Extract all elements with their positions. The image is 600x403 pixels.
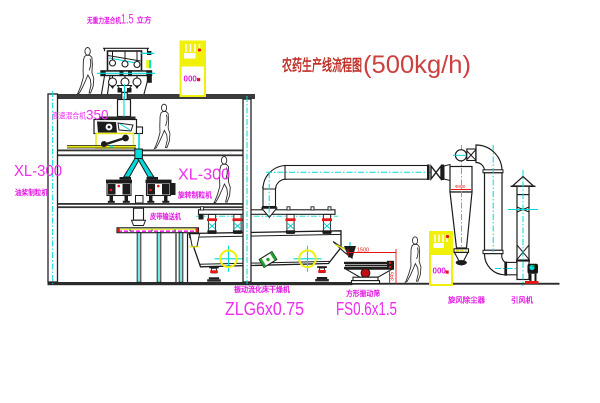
svg-text:(500kg/h): (500kg/h) — [363, 51, 471, 79]
svg-text:振动流化床干燥机: 振动流化床干燥机 — [234, 284, 290, 294]
svg-text:Φ800: Φ800 — [455, 184, 466, 189]
svg-text:皮带输送机: 皮带输送机 — [149, 211, 181, 221]
svg-text:ZLG6x0.75: ZLG6x0.75 — [225, 298, 304, 319]
svg-text:000: 000 — [184, 75, 198, 84]
svg-text:1.5: 1.5 — [121, 11, 134, 27]
svg-text:油桨制粒机: 油桨制粒机 — [15, 187, 48, 197]
svg-text:旋风除尘器: 旋风除尘器 — [447, 295, 485, 305]
svg-text:FS0.6x1.5: FS0.6x1.5 — [336, 298, 397, 319]
svg-text:高速混合机: 高速混合机 — [52, 111, 86, 121]
svg-text:方形振动筛: 方形振动筛 — [346, 288, 380, 298]
svg-text:350: 350 — [86, 108, 109, 123]
svg-text:000: 000 — [433, 267, 447, 276]
svg-text:1500: 1500 — [357, 248, 369, 254]
svg-text:无重力混合机: 无重力混合机 — [86, 15, 121, 25]
svg-text:XL-300: XL-300 — [178, 167, 230, 184]
svg-text:立方: 立方 — [137, 15, 152, 25]
svg-text:345: 345 — [390, 272, 396, 281]
svg-text:引风机: 引风机 — [511, 295, 533, 305]
svg-text:旋转制粒机: 旋转制粒机 — [177, 190, 212, 200]
svg-text:农药生产线流程图: 农药生产线流程图 — [281, 56, 362, 75]
svg-text:XL-300: XL-300 — [14, 163, 62, 180]
